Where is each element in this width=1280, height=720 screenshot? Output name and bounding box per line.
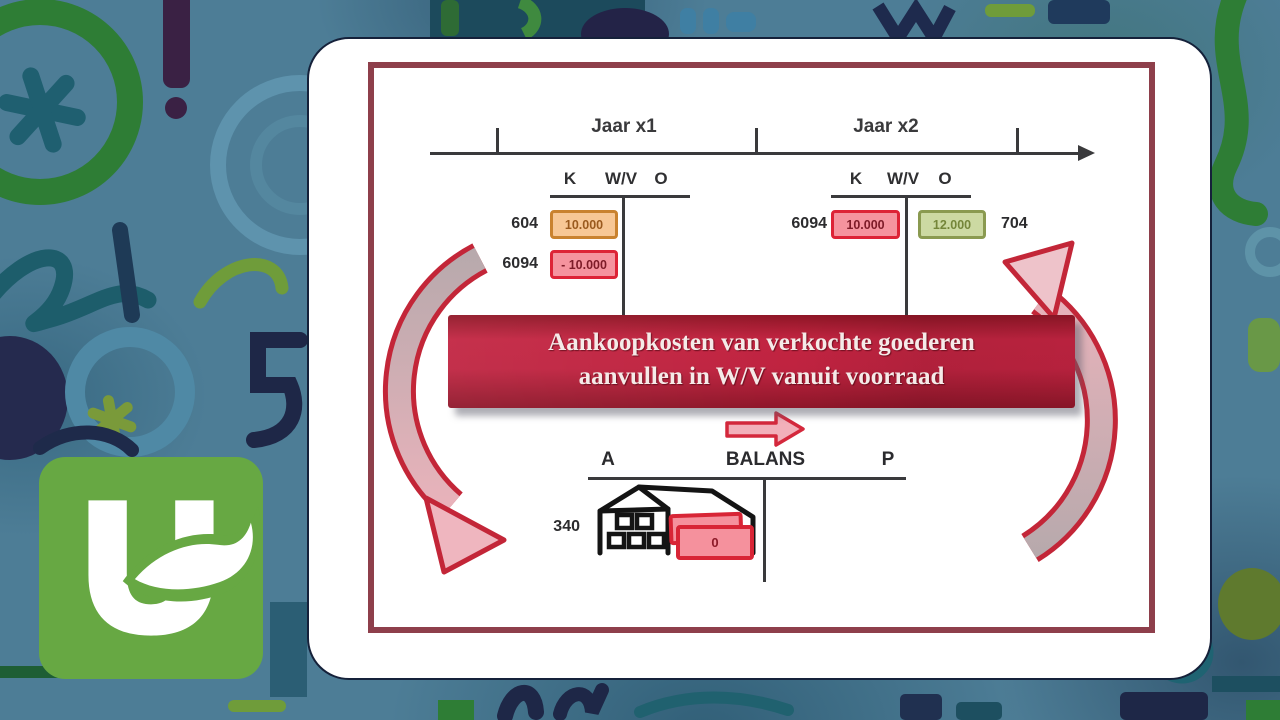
timeline-tick [1016, 128, 1019, 153]
balans-stem [763, 479, 766, 582]
timeline-tick [496, 128, 499, 153]
t1-row2-value-box: - 10.000 [550, 250, 618, 279]
year1-label: Jaar x1 [564, 116, 684, 138]
balans-title: BALANS [703, 449, 828, 471]
t1-row1-value-box: 10.000 [550, 210, 618, 239]
t1-account-stem [622, 197, 625, 317]
t1-header-k: K [558, 169, 582, 191]
curved-arrow-left-icon [399, 258, 504, 572]
t2-debit-code: 6094 [779, 215, 827, 235]
t1-header-wv: W/V [598, 169, 644, 191]
video-frame: Jaar x1 Jaar x2 K W/V O 604 10.000 6094 … [0, 0, 1280, 720]
stock-crate-value: 0 [680, 530, 750, 556]
t1-header-o: O [650, 169, 672, 191]
banner-line2: aanvullen in W/V vanuit voorraad [448, 360, 1075, 394]
balans-assets-label: A [593, 449, 623, 471]
t1-account-bar [550, 195, 690, 198]
t2-account-stem [905, 197, 908, 317]
t2-credit-code: 704 [1001, 215, 1049, 235]
t2-header-wv: W/V [880, 169, 926, 191]
year2-label: Jaar x2 [826, 116, 946, 138]
banner-line1: Aankoopkosten van verkochte goederen [448, 326, 1075, 360]
t2-credit-value-box: 12.000 [918, 210, 986, 239]
t2-account-bar [831, 195, 971, 198]
timeline-tick [755, 128, 758, 153]
balans-bar [588, 477, 906, 480]
t1-row1-code: 604 [494, 215, 538, 235]
timeline-arrowhead-icon [1078, 145, 1095, 161]
crate-squares-icon [609, 515, 664, 547]
t2-debit-value-box: 10.000 [831, 210, 900, 239]
stock-account-code: 340 [534, 518, 580, 538]
balans-liabilities-label: P [873, 449, 903, 471]
transfer-arrow-icon [727, 413, 803, 445]
t1-row2-code: 6094 [490, 255, 538, 275]
t2-header-k: K [844, 169, 868, 191]
uhasselt-logo [38, 455, 264, 681]
t2-header-o: O [934, 169, 956, 191]
title-banner: Aankoopkosten van verkochte goederen aan… [448, 315, 1075, 408]
